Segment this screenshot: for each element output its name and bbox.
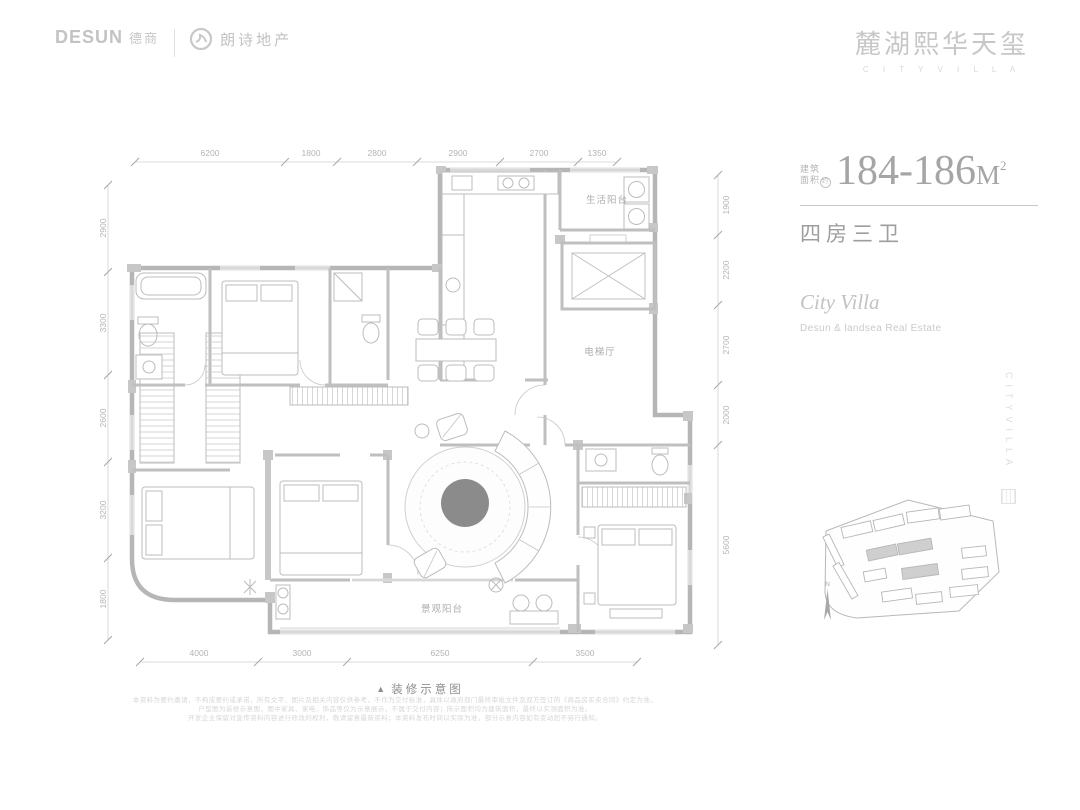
dim-left-3: 2600 bbox=[100, 408, 108, 427]
approx-circle: 约 bbox=[820, 177, 831, 188]
developer-line: Desun & landsea Real Estate bbox=[800, 323, 1038, 334]
info-panel: 建筑 面积约 184-186M2 四房三卫 City Villa Desun &… bbox=[800, 146, 1038, 334]
dim-top-1: 6200 bbox=[201, 148, 220, 158]
dim-right-2: 2200 bbox=[721, 260, 731, 279]
desun-logo-text: DESUN bbox=[55, 27, 123, 48]
disclaimer-line-1: 本资料为要约邀请，不构成要约或承诺，所有文字、图片及相关内容仅供参考，不作为交付… bbox=[55, 696, 735, 705]
label-service-balcony: 生活阳台 bbox=[586, 194, 628, 206]
master-bedroom bbox=[584, 525, 676, 618]
dim-left-4: 3200 bbox=[100, 500, 108, 519]
flower-plant bbox=[244, 579, 256, 595]
caption-text: 装修示意图 bbox=[391, 684, 464, 696]
dim-bottom-2: 3000 bbox=[293, 648, 312, 658]
header-logos: DESUN 德商 · · · · · · · · · · 朗诗地产 bbox=[55, 27, 292, 57]
project-brand: 麓湖熙华天玺 C I T Y V I L L A bbox=[832, 24, 1052, 74]
dim-bottom-1: 4000 bbox=[190, 648, 209, 658]
vertical-brand-text: CITYVILLA bbox=[1004, 372, 1014, 471]
master-bathroom bbox=[586, 448, 668, 475]
side-table bbox=[415, 424, 429, 438]
bedroom-bottom-middle bbox=[280, 481, 362, 575]
dim-bottom-3: 6250 bbox=[431, 648, 450, 658]
dimension-labels-top: 6200 1800 2800 2900 2700 1350 bbox=[201, 148, 607, 158]
label-view-balcony: 景观阳台 bbox=[421, 603, 463, 615]
dimension-labels-bottom: 4000 3000 6250 3500 bbox=[190, 648, 595, 658]
floor-plan-svg: 6200 1800 2800 2900 2700 1350 2900 3300 … bbox=[100, 135, 740, 705]
area-unit: M bbox=[976, 160, 1000, 190]
disclaimer-line-3: 开发企业保留对宣传资料内容进行修改的权利，敬请留意最新资料；本资料发布时间以实际… bbox=[55, 714, 735, 723]
living-room bbox=[405, 412, 551, 592]
desun-logo: DESUN 德商 · · · · · · · · · · bbox=[55, 27, 160, 57]
area-row: 建筑 面积约 184-186M2 bbox=[800, 146, 1038, 195]
round-coffee-table bbox=[441, 479, 489, 527]
area-label-line1: 建筑 bbox=[800, 164, 831, 175]
balcony-furniture bbox=[244, 579, 558, 624]
dim-top-3: 2800 bbox=[368, 148, 387, 158]
dim-right-3: 2700 bbox=[721, 335, 731, 354]
dim-left-2: 3300 bbox=[100, 313, 108, 332]
area-label: 建筑 面积约 bbox=[800, 164, 831, 188]
landsea-circle-icon bbox=[189, 27, 213, 51]
disclaimer-line-2: 户型图为装修示意图，图中家具、家电、饰品等仅为示意展示，不属于交付内容；所示面积… bbox=[55, 705, 735, 714]
dim-right-1: 1900 bbox=[721, 195, 731, 214]
bathroom-middle bbox=[334, 273, 380, 343]
dim-bottom-4: 3500 bbox=[576, 648, 595, 658]
dim-top-2: 1800 bbox=[302, 148, 321, 158]
dimension-labels-right: 1900 2200 2700 2000 5600 bbox=[721, 195, 731, 554]
bedroom-bottom-left bbox=[142, 487, 254, 559]
villa-title: City Villa bbox=[800, 290, 1038, 315]
area-label-line2: 面积约 bbox=[800, 175, 831, 188]
dim-right-5: 5600 bbox=[721, 535, 731, 554]
logo-divider bbox=[174, 29, 175, 57]
floor-plan: 6200 1800 2800 2900 2700 1350 2900 3300 … bbox=[100, 135, 740, 705]
dim-right-4: 2000 bbox=[721, 405, 731, 424]
dim-left-5: 1800 bbox=[100, 589, 108, 608]
dim-left-1: 2900 bbox=[100, 218, 108, 237]
info-divider bbox=[800, 205, 1038, 206]
dim-top-5: 2700 bbox=[530, 148, 549, 158]
elevator-shaft bbox=[562, 235, 655, 309]
compass-label: N bbox=[825, 581, 830, 588]
disclaimer: 本资料为要约邀请，不构成要约或承诺，所有文字、图片及相关内容仅供参考，不作为交付… bbox=[55, 696, 735, 723]
bedroom-top-left bbox=[222, 281, 298, 375]
dining-set bbox=[416, 319, 496, 381]
label-elevator-hall: 电梯厅 bbox=[584, 346, 616, 358]
desun-tagline: · · · · · · · · · · bbox=[55, 51, 160, 57]
poster-page: DESUN 德商 · · · · · · · · · · 朗诗地产 麓湖熙华天玺… bbox=[0, 0, 1080, 810]
armchair-top bbox=[435, 412, 468, 442]
dim-top-6: 1350 bbox=[588, 148, 607, 158]
project-subtitle: C I T Y V I L L A bbox=[832, 65, 1052, 74]
dim-top-4: 2900 bbox=[449, 148, 468, 158]
dimension-labels-left: 2900 3300 2600 3200 1800 bbox=[100, 218, 108, 608]
desun-logo-cn: 德商 bbox=[129, 28, 159, 47]
landsea-logo-text: 朗诗地产 bbox=[220, 29, 292, 50]
area-value: 184-186M2 bbox=[836, 146, 1007, 195]
landsea-logo: 朗诗地产 bbox=[189, 27, 292, 51]
site-plan: N bbox=[812, 490, 1007, 630]
caption-triangle-icon: ▲ bbox=[376, 684, 385, 694]
area-exponent: 2 bbox=[1000, 158, 1007, 173]
project-title: 麓湖熙华天玺 bbox=[832, 24, 1052, 61]
layout-text: 四房三卫 bbox=[800, 218, 1038, 248]
